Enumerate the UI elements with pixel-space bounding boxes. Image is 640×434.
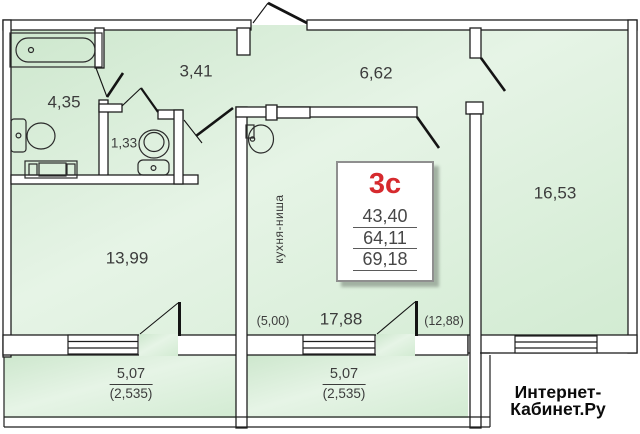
kitchen-coef-label: (5,00)	[257, 315, 290, 328]
window-kitchen-living	[303, 335, 375, 354]
wall-entry-stub	[237, 28, 250, 55]
wall-left	[3, 20, 11, 357]
entrance-door	[253, 3, 307, 23]
balcony-left-reduced: (2,535)	[110, 385, 153, 401]
unit-living-area: 43,40	[353, 206, 417, 228]
balcony-right-areas: 5,07 (2,535)	[323, 366, 366, 400]
wall-wc-top	[99, 104, 122, 112]
floor-plan-drawing	[0, 0, 640, 434]
wall-divider-center	[236, 107, 247, 428]
unit-total-area: 64,11	[353, 228, 417, 250]
wall-vent-block-small	[266, 105, 277, 120]
floor-plan: 4,35 1,33 3,41 6,62 13,99 16,53 17,88 (5…	[0, 0, 640, 434]
balcony-right-area: 5,07	[323, 367, 365, 385]
room-area-wc: 1,33	[111, 136, 137, 150]
wall-room-right-lower	[470, 114, 481, 428]
doorway-left	[139, 334, 178, 356]
unit-overall-area: 69,18	[353, 249, 417, 271]
doorway-right	[376, 334, 415, 356]
wall-bath-nook	[95, 28, 104, 68]
watermark: Интернет- Кабинет.Ру	[510, 384, 606, 417]
living-coef-label: (12,88)	[424, 315, 464, 328]
balcony-left-areas: 5,07 (2,535)	[110, 366, 153, 400]
unit-areas: 43,40 64,11 69,18	[353, 206, 417, 271]
balcony-left-area: 5,07	[110, 367, 152, 385]
wall-room-right-jamb	[466, 102, 483, 114]
wall-room-right-upper	[470, 28, 481, 58]
wall-wc-right	[174, 110, 183, 184]
wall-top-left	[3, 20, 251, 30]
room-area-hallway: 3,41	[179, 63, 212, 80]
balcony-right-reduced: (2,535)	[323, 385, 366, 401]
wall-kitchen-top	[236, 107, 417, 117]
room-area-kitchen-living: 17,88	[320, 311, 363, 328]
room-area-bathroom: 4,35	[47, 94, 80, 111]
room-area-room-right: 16,53	[534, 185, 577, 202]
wall-vent-block-large	[277, 107, 310, 118]
room-area-room-left: 13,99	[106, 250, 149, 267]
window-room-left	[68, 335, 138, 354]
kitchen-niche-label: кухня-ниша	[273, 194, 285, 263]
watermark-line2: Кабинет.Ру	[510, 401, 606, 418]
window-room-right	[515, 336, 597, 353]
floor-areas	[4, 25, 629, 418]
unit-summary-card: 3с 43,40 64,11 69,18	[336, 161, 434, 282]
unit-type-label: 3с	[369, 170, 401, 199]
wall-right	[628, 20, 637, 353]
room-area-entrance-hall: 6,62	[359, 65, 392, 82]
